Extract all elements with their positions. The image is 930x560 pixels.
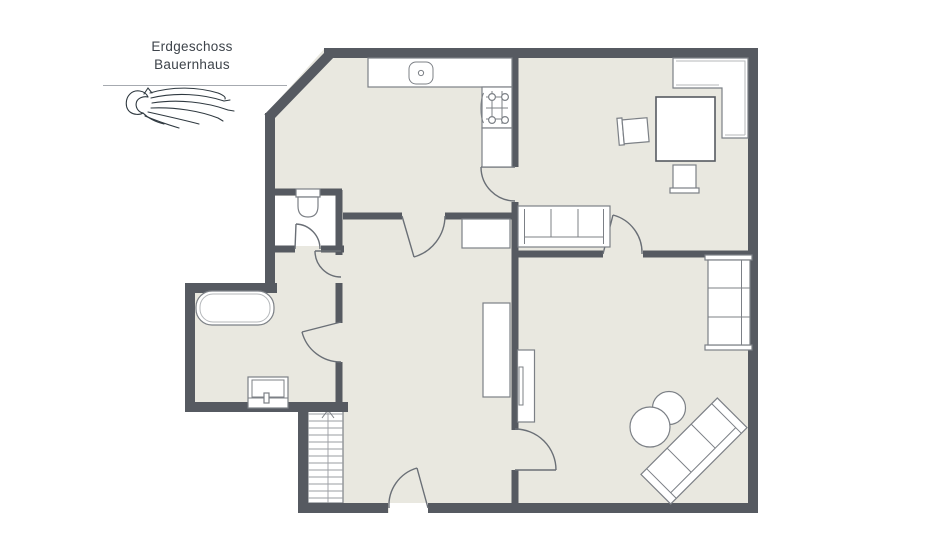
floorplan-canvas bbox=[0, 0, 930, 560]
staircase bbox=[308, 403, 343, 503]
horse-logo-icon bbox=[118, 86, 243, 134]
vanity-washbasin bbox=[248, 377, 288, 408]
dining-chair-bottom bbox=[670, 165, 699, 193]
plan-title-line1: Erdgeschoss bbox=[102, 38, 282, 56]
tv-lowboard bbox=[518, 350, 535, 422]
plan-title-line2: Bauernhaus bbox=[102, 56, 282, 74]
bookshelf bbox=[705, 255, 752, 350]
sofa-three-seat bbox=[518, 206, 610, 247]
stove bbox=[481, 87, 512, 128]
round-pouf-large bbox=[630, 407, 670, 447]
hall-sideboard bbox=[462, 219, 510, 248]
dining-chair-left bbox=[617, 116, 649, 146]
dining-table bbox=[656, 97, 715, 161]
kitchen-counter bbox=[368, 58, 512, 87]
entrance-door-threshold bbox=[389, 503, 428, 513]
bathtub bbox=[196, 291, 274, 325]
kitchen-base-cabinet bbox=[482, 128, 512, 167]
wardrobe bbox=[483, 303, 510, 397]
plan-title: Erdgeschoss Bauernhaus bbox=[102, 38, 282, 74]
toilet bbox=[296, 189, 320, 217]
